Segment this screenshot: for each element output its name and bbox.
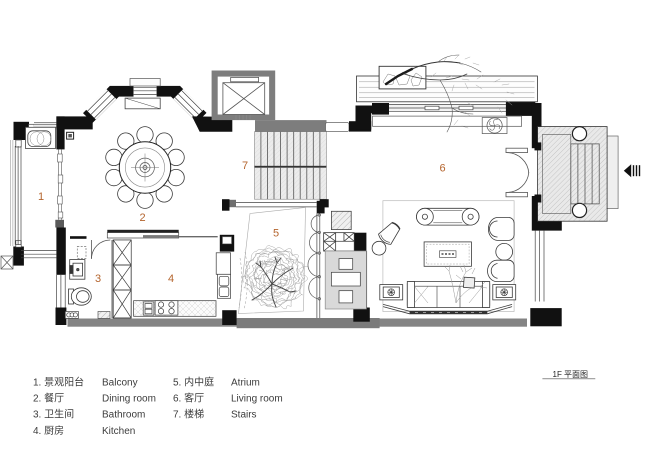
svg-text:Stairs: Stairs: [231, 410, 257, 421]
svg-text:1. 景观阳台: 1. 景观阳台: [33, 375, 84, 388]
svg-text:Living room: Living room: [231, 394, 283, 405]
svg-text:2: 2: [140, 212, 146, 224]
svg-text:4. 厨房: 4. 厨房: [33, 424, 64, 437]
svg-text:5: 5: [273, 228, 279, 240]
svg-text:Atrium: Atrium: [231, 377, 260, 388]
svg-text:6: 6: [440, 163, 446, 175]
svg-text:4: 4: [168, 273, 174, 285]
svg-text:Dining room: Dining room: [102, 394, 156, 405]
svg-text:2. 餐厅: 2. 餐厅: [33, 392, 64, 405]
svg-text:Balcony: Balcony: [102, 377, 138, 388]
svg-text:6. 客厅: 6. 客厅: [173, 392, 204, 405]
svg-text:3: 3: [95, 273, 101, 285]
svg-text:1: 1: [38, 191, 44, 203]
svg-text:7. 楼梯: 7. 楼梯: [173, 408, 204, 421]
svg-text:Kitchen: Kitchen: [102, 426, 135, 437]
svg-text:Bathroom: Bathroom: [102, 410, 145, 421]
svg-text:5. 内中庭: 5. 内中庭: [173, 375, 214, 388]
svg-text:1F 平面图: 1F 平面图: [553, 370, 589, 379]
svg-text:3. 卫生间: 3. 卫生间: [33, 408, 74, 421]
svg-text:7: 7: [242, 160, 248, 172]
